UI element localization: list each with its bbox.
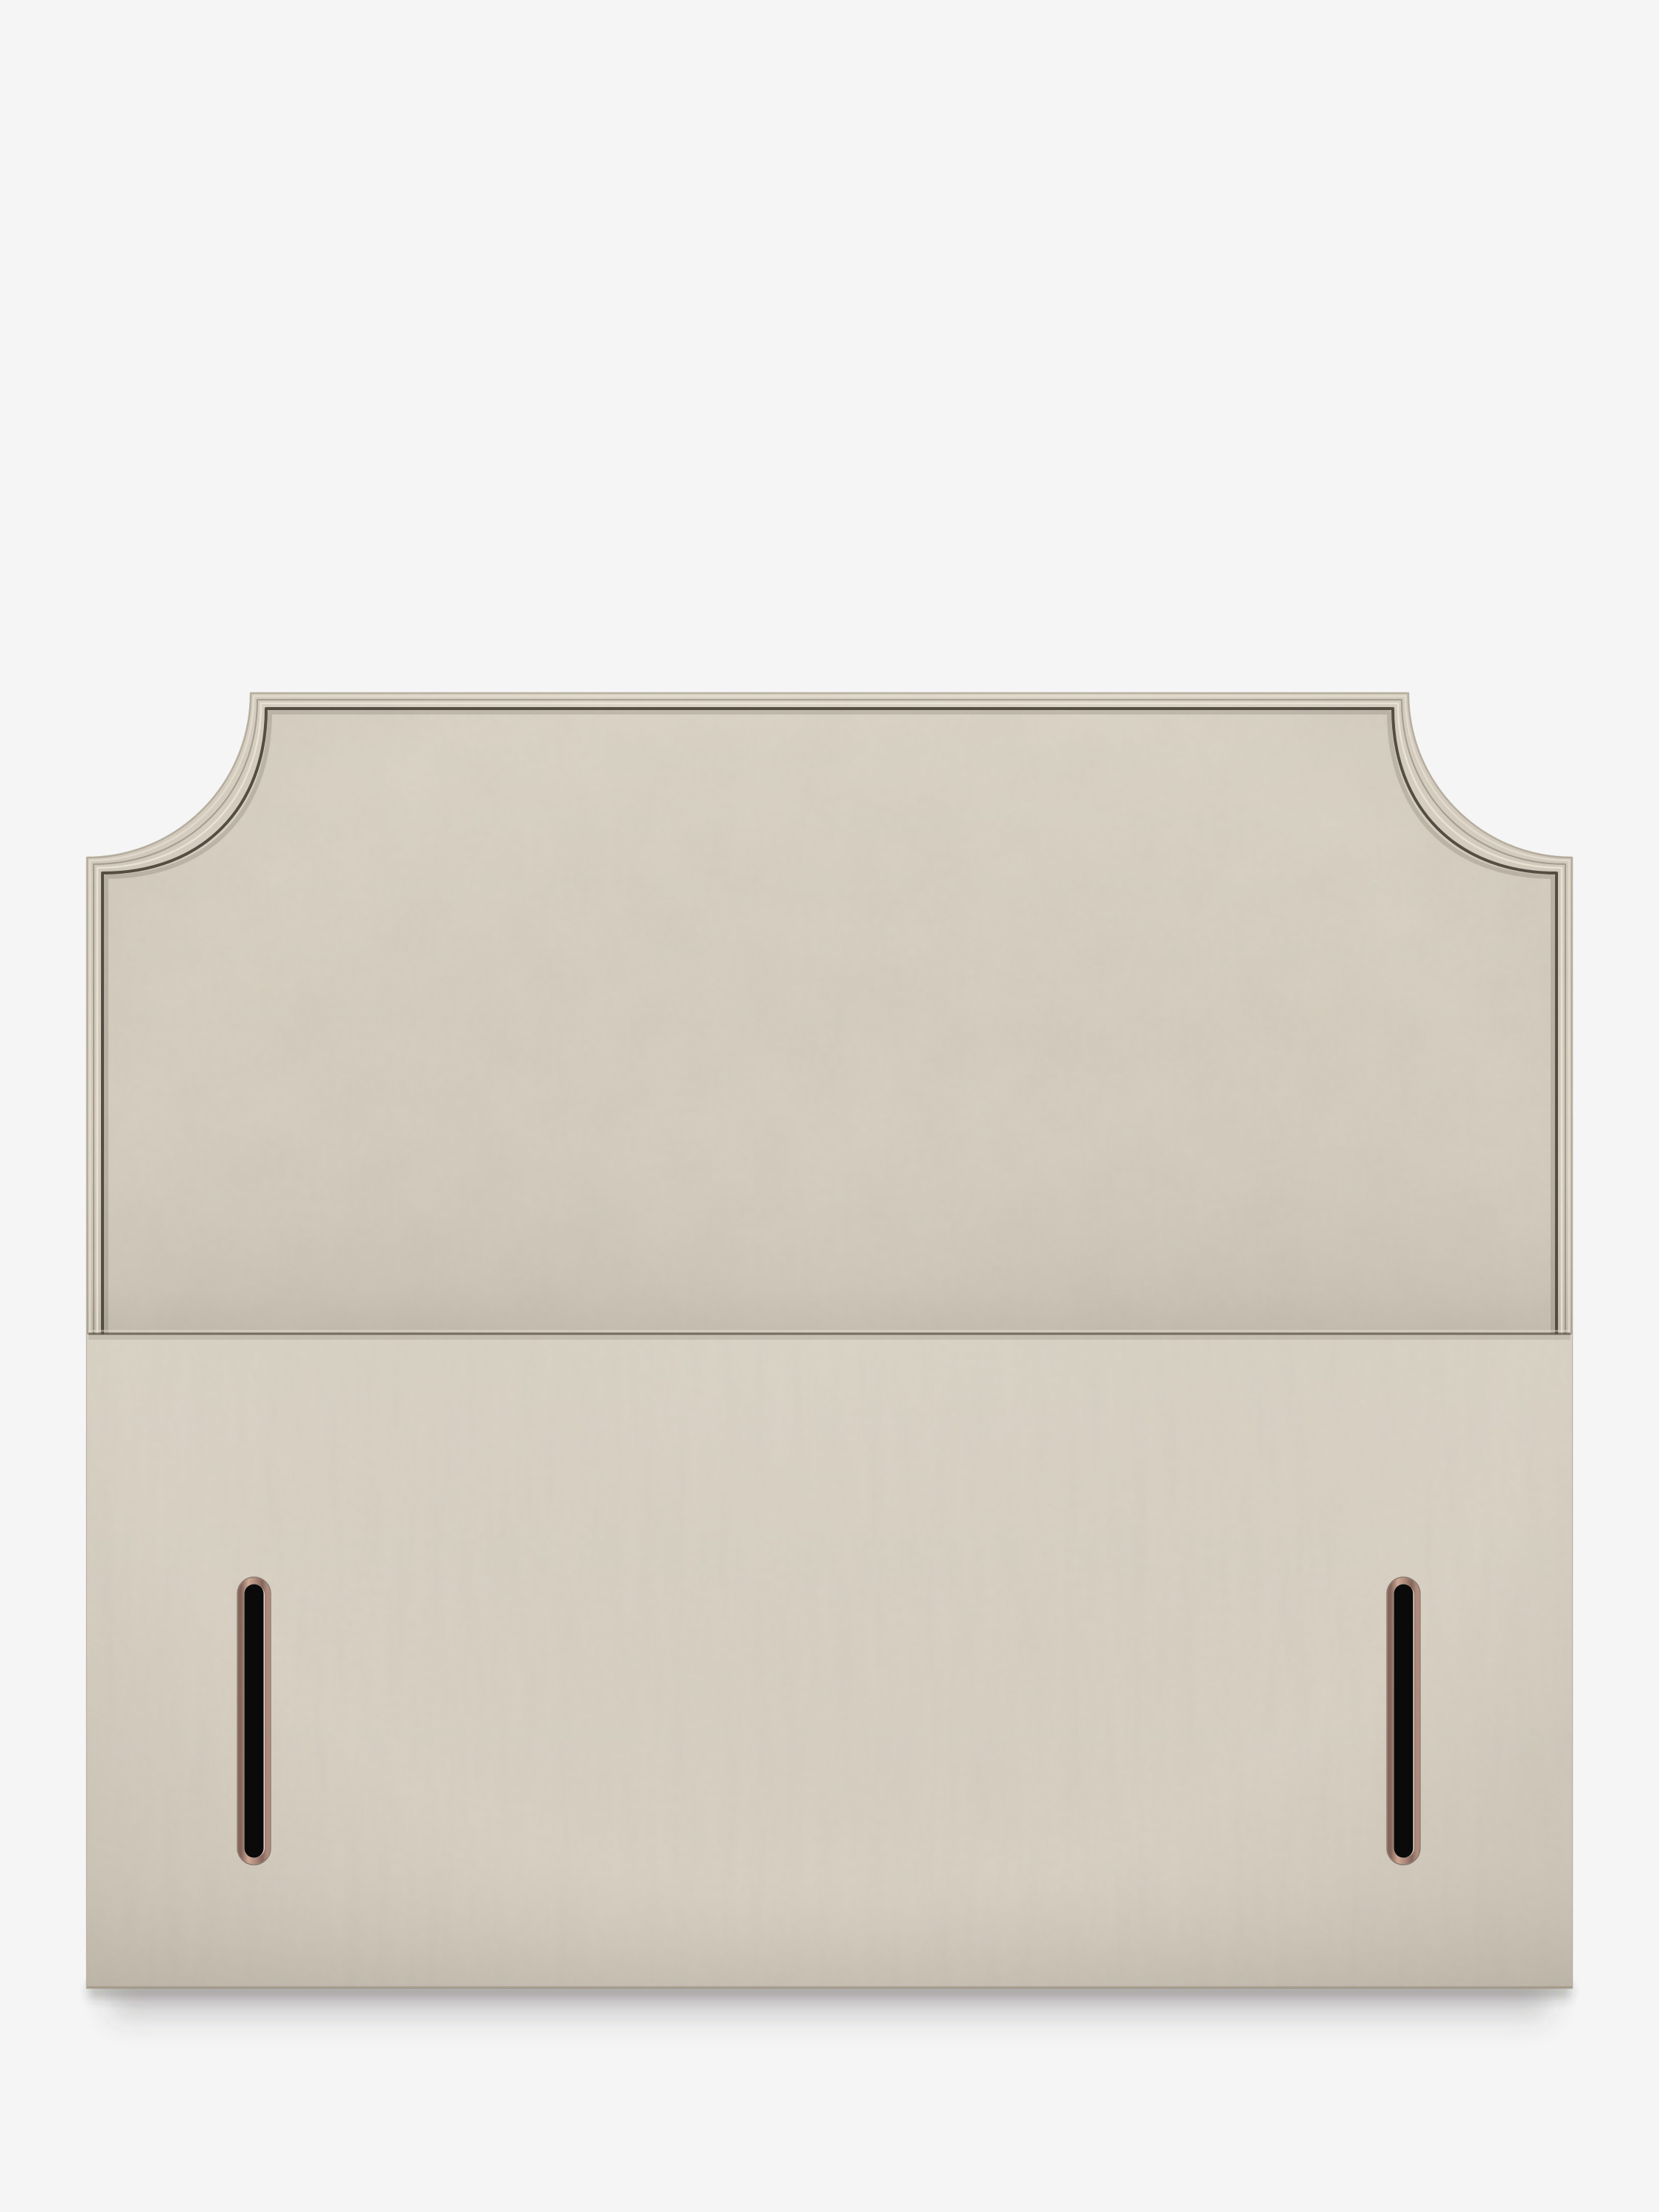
headboard-product-image [0,0,1659,2212]
headboard [87,693,1572,2028]
lighting-overlays [87,693,1572,1988]
slot-interior [1394,1585,1413,1858]
vignette-overlay [87,693,1572,1988]
strut-slot-right [1387,1577,1420,1865]
slot-interior [245,1585,264,1858]
strut-slot-left [237,1577,271,1865]
product-photo-stage [0,0,1659,2212]
